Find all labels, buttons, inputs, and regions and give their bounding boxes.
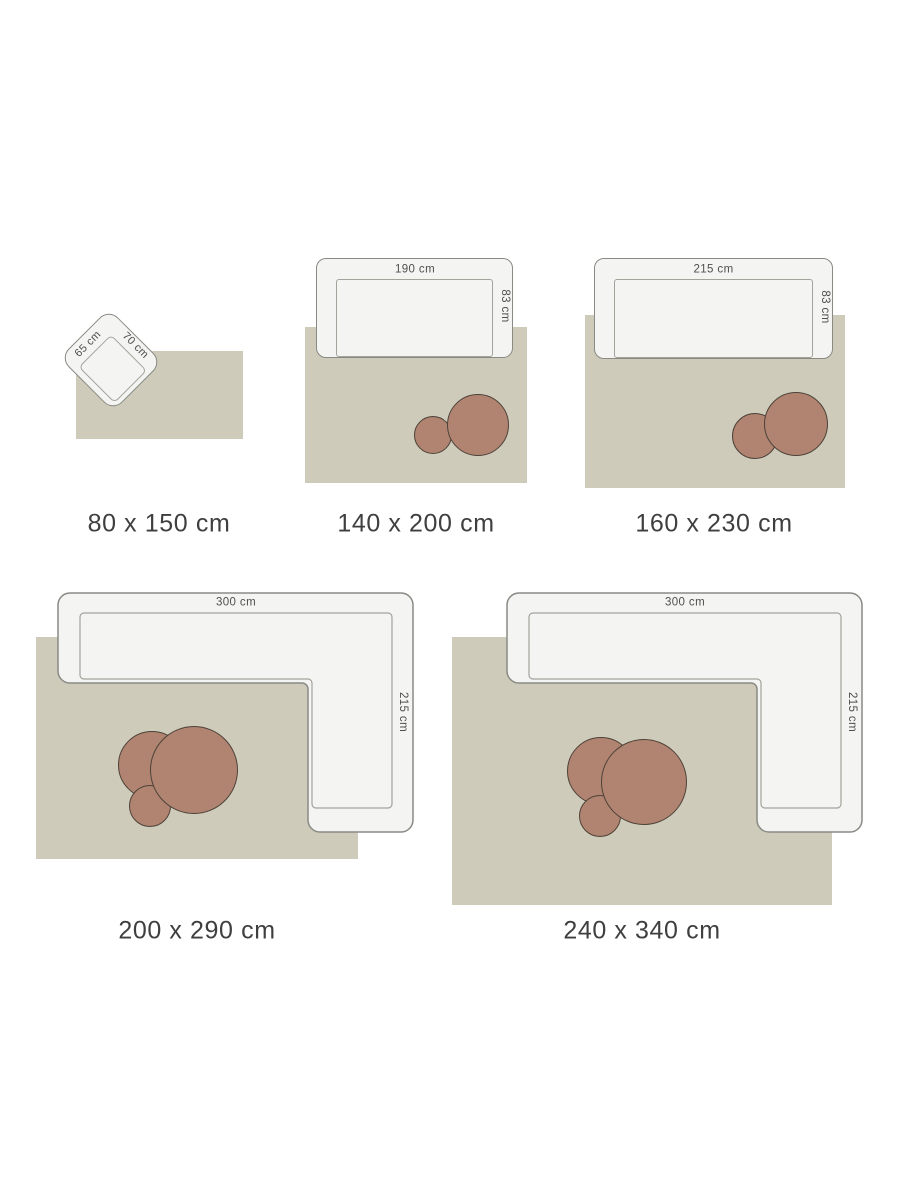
furniture-depth-label: 215 cm: [396, 692, 408, 732]
sofa-seat: [336, 279, 493, 357]
rug-size-label: 160 x 230 cm: [635, 512, 792, 537]
coffee-table-large: [150, 726, 238, 814]
furniture-width-label: 190 cm: [395, 264, 435, 276]
furniture-depth-label: 215 cm: [845, 692, 857, 732]
sofa-seat: [614, 279, 813, 358]
rug-size-label: 240 x 340 cm: [563, 919, 720, 944]
coffee-table-large: [764, 392, 828, 456]
corner-sofa-top-view: 300 cm 215 cm: [58, 593, 413, 832]
corner-sofa-outline: [58, 593, 413, 832]
furniture-depth-label: 83 cm: [498, 289, 510, 322]
furniture-depth-label: 83 cm: [818, 290, 830, 323]
coffee-table-large: [447, 394, 509, 456]
rug-size-guide: 65 cm 70 cm 80 x 150 cm 190 cm 83 cm 140…: [0, 0, 900, 1200]
rug-size-label: 80 x 150 cm: [88, 512, 231, 537]
sofa-top-view: 190 cm 83 cm: [316, 258, 513, 358]
furniture-width-label: 215 cm: [693, 264, 733, 276]
corner-sofa-graphic: [58, 593, 413, 832]
rug-size-label: 200 x 290 cm: [118, 919, 275, 944]
rug-size-label: 140 x 200 cm: [337, 512, 494, 537]
coffee-table-large: [601, 739, 687, 825]
furniture-width-label: 300 cm: [665, 597, 705, 609]
sofa-top-view: 215 cm 83 cm: [594, 258, 833, 359]
furniture-width-label: 300 cm: [216, 597, 256, 609]
